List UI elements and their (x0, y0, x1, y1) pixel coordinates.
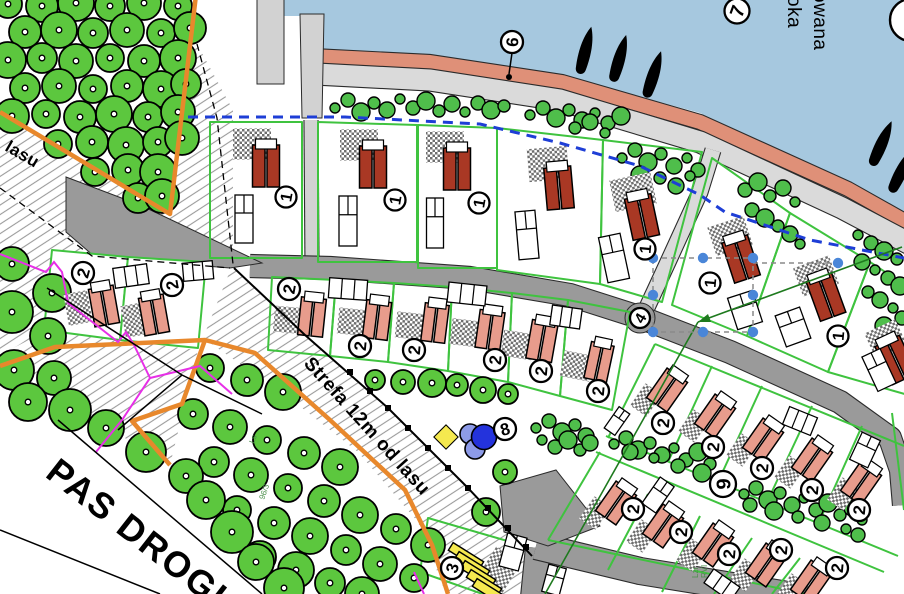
bush-icon (775, 180, 791, 196)
bush-icon (682, 153, 692, 163)
circled-label-1: 1 (700, 273, 721, 294)
garage (427, 198, 444, 248)
tree-center-dot (141, 0, 147, 6)
circled-label-6: 6 (501, 31, 523, 53)
tree-center-dot (203, 497, 209, 503)
circled-label-number: 2 (486, 355, 506, 366)
circled-label-9: 9 (710, 471, 736, 497)
tree-center-dot (158, 30, 164, 36)
bush-icon (649, 453, 659, 463)
house (421, 297, 450, 344)
bush-icon (749, 481, 763, 495)
tree-center-dot (183, 473, 189, 479)
tree-center-dot (393, 526, 399, 532)
bush-icon (609, 439, 619, 449)
tree-icon (0, 291, 33, 333)
tree-center-dot (39, 3, 45, 9)
tree-center-dot (400, 379, 406, 385)
tree-center-dot (90, 86, 96, 92)
tree-center-dot (103, 425, 109, 431)
house-roof-ridge (363, 140, 384, 150)
bush-icon (417, 92, 435, 110)
circled-label-number: 2 (803, 485, 823, 496)
tree-center-dot (337, 464, 343, 470)
bush-icon (872, 292, 888, 308)
bush-icon (792, 511, 804, 523)
circled-label-3: 3 (441, 557, 463, 579)
tree-center-dot (90, 30, 96, 36)
house-half (360, 146, 373, 188)
circled-label-2: 2 (161, 274, 183, 296)
circled-label-2: 2 (652, 412, 674, 434)
tree-center-dot (155, 169, 161, 175)
tick-mark (385, 405, 391, 411)
bush-icon (655, 148, 667, 160)
tree-center-dot (357, 512, 363, 518)
bush-icon (666, 158, 682, 174)
bush-icon (795, 239, 805, 249)
bush-icon (482, 101, 500, 119)
bush-icon (525, 110, 535, 120)
tree-center-dot (5, 1, 11, 7)
tree-center-dot (5, 57, 11, 63)
tree-center-dot (39, 55, 45, 61)
circled-label-2: 2 (349, 335, 371, 357)
bush-icon (547, 109, 565, 127)
tree-center-dot (143, 449, 149, 455)
tick-mark (347, 369, 353, 375)
tree-center-dot (67, 407, 73, 413)
bush-icon (542, 414, 556, 428)
tree-center-dot (285, 485, 291, 491)
house-half (267, 145, 280, 187)
bush-icon (851, 528, 865, 542)
bush-icon (460, 107, 470, 117)
circled-label-number: 2 (753, 463, 773, 474)
circled-label-number: 2 (624, 504, 644, 515)
bush-icon (433, 105, 445, 117)
tree-center-dot (111, 111, 117, 117)
tree-center-dot (141, 58, 147, 64)
tree-center-dot (281, 585, 287, 591)
circled-label-number: 2 (405, 345, 425, 356)
bush-icon (685, 171, 695, 181)
tree-center-dot (155, 139, 161, 145)
circled-label-1: 1 (276, 187, 297, 208)
bush-icon (395, 94, 405, 104)
circled-label-2: 2 (826, 557, 848, 579)
bush-icon (743, 498, 757, 512)
tree-center-dot (45, 333, 51, 339)
bush-icon (498, 100, 510, 112)
house (253, 139, 280, 187)
tree-center-dot (327, 580, 333, 586)
bush-icon (790, 197, 800, 207)
tree-center-dot (124, 83, 130, 89)
garage-outline (515, 210, 539, 260)
tick-mark (425, 445, 431, 451)
circled-label-number: 2 (772, 545, 792, 556)
bush-icon (559, 431, 577, 449)
garage (783, 407, 818, 436)
bush-icon (693, 464, 711, 482)
tree-center-dot (159, 193, 165, 199)
circled-label-2: 2 (718, 543, 740, 565)
tree-center-dot (9, 309, 15, 315)
circled-label-2: 2 (72, 262, 94, 284)
circled-label-number: 2 (654, 418, 674, 429)
poi-diamond-marker (434, 425, 458, 449)
garage (235, 195, 253, 243)
bush-icon (563, 104, 575, 116)
site-plan-map: 671111114222222222222222222893PAS DROGIS… (0, 0, 904, 594)
bush-icon (782, 226, 798, 242)
circled-label-1: 1 (385, 190, 406, 211)
tick-mark (505, 525, 511, 531)
label-6-leader-dot (506, 74, 512, 80)
tree-center-dot (77, 114, 83, 120)
label-rvi: RVI (700, 565, 709, 578)
label-owana: owana (809, 0, 830, 51)
bush-icon (853, 230, 863, 240)
circled-label-2: 2 (484, 349, 506, 371)
tree-center-dot (454, 382, 460, 388)
tree-center-dot (158, 86, 164, 92)
tree-center-dot (125, 167, 131, 173)
tree-center-dot (123, 142, 129, 148)
house-half (544, 167, 560, 210)
house (475, 304, 506, 351)
circled-label-2: 2 (530, 360, 552, 382)
tree-center-dot (502, 469, 508, 475)
garage (328, 278, 367, 301)
tree-center-dot (145, 114, 151, 120)
bush-icon (749, 173, 767, 191)
selection-handle (698, 253, 708, 263)
tree-center-dot (229, 529, 235, 535)
bush-icon (341, 93, 355, 107)
circled-label-2: 2 (670, 521, 692, 543)
house-half (311, 298, 326, 337)
house-half (458, 148, 471, 190)
garage-outline (598, 233, 629, 283)
tree-center-dot (51, 375, 57, 381)
bush-icon (870, 265, 880, 275)
circled-label-1: 1 (828, 326, 849, 347)
garage (775, 307, 811, 347)
tree-center-dot (253, 559, 259, 565)
tree-center-dot (372, 377, 378, 383)
bush-icon (765, 502, 783, 520)
tree-center-dot (25, 399, 31, 405)
house-roof-ridge (447, 142, 468, 152)
bush-icon (628, 143, 642, 157)
tree-center-dot (9, 261, 15, 267)
house-roof-ridge (256, 139, 277, 149)
tree-center-dot (211, 459, 217, 465)
bush-icon (891, 277, 904, 295)
tree-center-dot (175, 55, 181, 61)
tree-center-dot (73, 58, 79, 64)
circled-label-2: 2 (622, 498, 644, 520)
bush-icon (888, 303, 898, 313)
tree-center-dot (321, 498, 327, 504)
circled-label-2: 2 (587, 380, 609, 402)
bush-icon (774, 487, 786, 499)
shore-access-path (300, 14, 324, 118)
tree-center-dot (207, 365, 213, 371)
circled-label-2: 2 (848, 499, 870, 521)
tree-center-dot (56, 27, 62, 33)
tick-mark (405, 425, 411, 431)
tree-center-dot (301, 450, 307, 456)
selection-handle (748, 327, 758, 337)
bush-icon (841, 524, 851, 534)
tick-mark (485, 505, 491, 511)
tree-center-dot (429, 380, 435, 386)
tree-center-dot (124, 27, 130, 33)
bush-icon (368, 97, 380, 109)
house-half (444, 148, 457, 190)
selection-handle (748, 290, 758, 300)
house (298, 291, 327, 337)
tick-mark (523, 544, 529, 550)
circled-label-2: 2 (770, 539, 792, 561)
bush-icon (891, 253, 903, 265)
tree-center-dot (248, 472, 254, 478)
circled-label-number: 1 (701, 278, 720, 289)
label-oka: oka (783, 0, 804, 28)
circled-label-number: 2 (589, 386, 609, 397)
bush-icon (671, 459, 685, 473)
tree-center-dot (227, 424, 233, 430)
circled-label-number: 1 (829, 331, 848, 342)
circled-label-number: 2 (850, 505, 870, 516)
tree-center-dot (377, 561, 383, 567)
garage-outline (113, 264, 149, 289)
selection-handle (648, 290, 658, 300)
tree-center-dot (22, 85, 28, 91)
bush-icon (612, 107, 630, 125)
tree-center-dot (56, 83, 62, 89)
house-roof-ridge (428, 297, 447, 309)
circled-label-2: 2 (702, 436, 724, 458)
tick-mark (465, 485, 471, 491)
garage-outline (550, 305, 582, 329)
tree-center-dot (22, 29, 28, 35)
bush-icon (379, 102, 395, 118)
bush-icon (569, 419, 581, 431)
tree-center-dot (175, 3, 181, 9)
bush-icon (569, 122, 581, 134)
garage-outline (447, 282, 487, 306)
bush-icon (531, 423, 541, 433)
tree-center-dot (280, 389, 286, 395)
circled-label-number: 1 (636, 244, 655, 255)
tree-center-dot (73, 0, 79, 6)
plan-viewport: 671111114222222222222222222893PAS DROGIS… (0, 0, 904, 594)
label-lzr: Lzr (691, 567, 700, 578)
circled-label-number: 2 (532, 366, 552, 377)
garage (550, 305, 582, 329)
selection-handle (748, 253, 758, 263)
tree-center-dot (307, 533, 313, 539)
circled-label-8: 8 (494, 418, 516, 440)
bush-icon (582, 114, 598, 130)
house-roof-ridge (304, 291, 324, 303)
tree-center-dot (271, 520, 277, 526)
lot-path (311, 120, 312, 262)
bush-icon (444, 96, 460, 112)
tree-center-dot (107, 3, 113, 9)
circled-label-1: 1 (469, 193, 490, 214)
circled-label-2: 2 (403, 339, 425, 361)
tree-center-dot (11, 367, 17, 373)
bush-icon (644, 437, 656, 449)
shore-access-stub (257, 0, 284, 84)
bush-icon (668, 178, 684, 194)
guide-arrowhead (698, 314, 711, 322)
garage (447, 282, 487, 306)
bush-icon (537, 435, 547, 445)
house-roof-ridge (483, 304, 503, 317)
bush-icon (582, 435, 598, 451)
garage (339, 196, 357, 246)
tree-center-dot (89, 139, 95, 145)
tree-center-dot (244, 377, 250, 383)
tree-center-dot (343, 547, 349, 553)
bush-icon (764, 190, 776, 202)
garage (113, 264, 149, 289)
garage (515, 210, 539, 260)
house (444, 142, 471, 190)
tick-mark (445, 465, 451, 471)
circled-label-number: 2 (720, 549, 740, 560)
circled-label-number: 2 (351, 341, 371, 352)
poi-circle-marker (472, 425, 497, 450)
house-half (374, 146, 387, 188)
circled-label-4: 4 (630, 308, 651, 328)
tick-mark (367, 388, 373, 394)
tree-center-dot (107, 55, 113, 61)
house (543, 160, 574, 210)
bush-icon (600, 128, 610, 138)
circled-label-number: 2 (828, 563, 848, 574)
garage (598, 233, 629, 283)
bush-icon (739, 489, 749, 499)
bush-icon (814, 515, 830, 531)
circled-label-1: 1 (635, 239, 656, 260)
tree-center-dot (264, 437, 270, 443)
house-half (558, 166, 574, 209)
house-roof-ridge (546, 160, 568, 172)
circled-label-number: 9 (713, 478, 735, 489)
garage-outline (328, 278, 367, 301)
circled-label-number: 6 (503, 37, 523, 48)
tree-center-dot (505, 391, 511, 397)
circled-label-2: 2 (801, 479, 823, 501)
circled-label-2: 2 (751, 457, 773, 479)
tree-center-dot (43, 111, 49, 117)
circled-label-2: 2 (278, 278, 300, 300)
house-half (253, 145, 266, 187)
selection-handle (648, 327, 658, 337)
circled-label-number: 2 (672, 527, 692, 538)
garage-outline (783, 407, 818, 436)
bush-icon (330, 103, 340, 113)
tree-center-dot (190, 411, 196, 417)
bush-icon (669, 443, 679, 453)
tree-center-dot (480, 387, 486, 393)
circled-label-number: 2 (704, 442, 724, 453)
selection-handle (833, 258, 843, 268)
house (584, 336, 615, 383)
house-roof-ridge (369, 294, 389, 306)
selection-handle (698, 327, 708, 337)
circled-label-7: 7 (725, 0, 751, 24)
house (360, 140, 387, 188)
